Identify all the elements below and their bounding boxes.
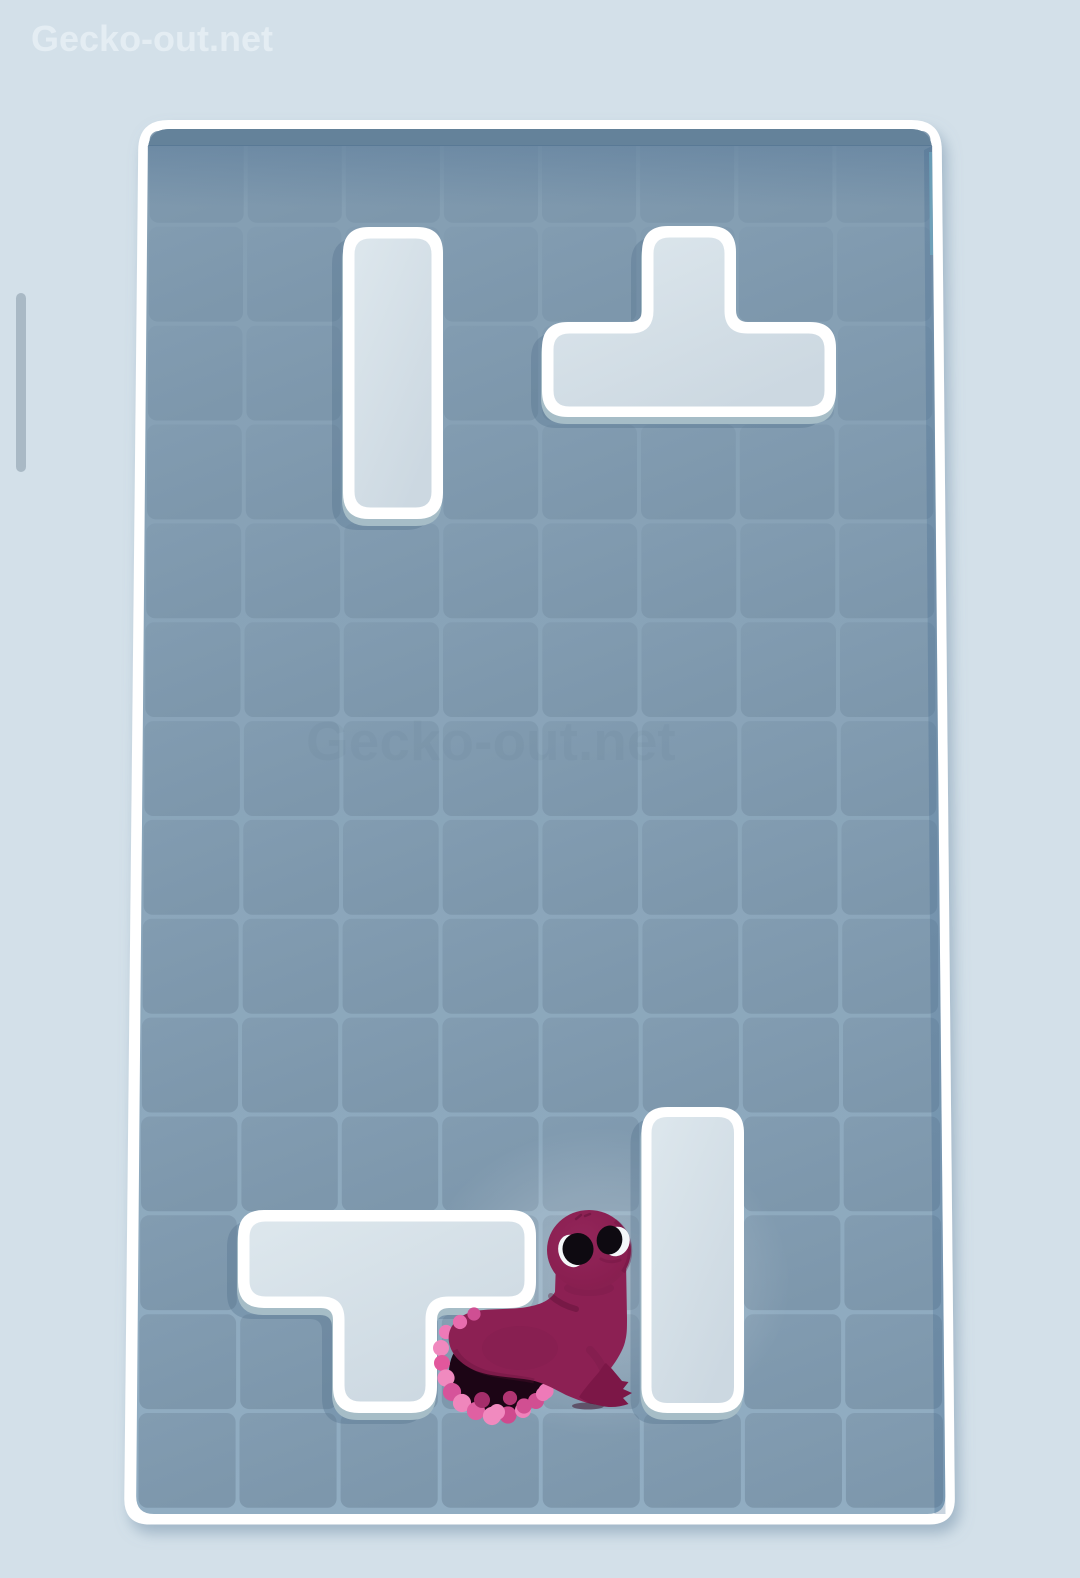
- svg-text:Gecko-out.net: Gecko-out.net: [306, 710, 676, 772]
- svg-text:Gecko-out.net: Gecko-out.net: [31, 18, 273, 59]
